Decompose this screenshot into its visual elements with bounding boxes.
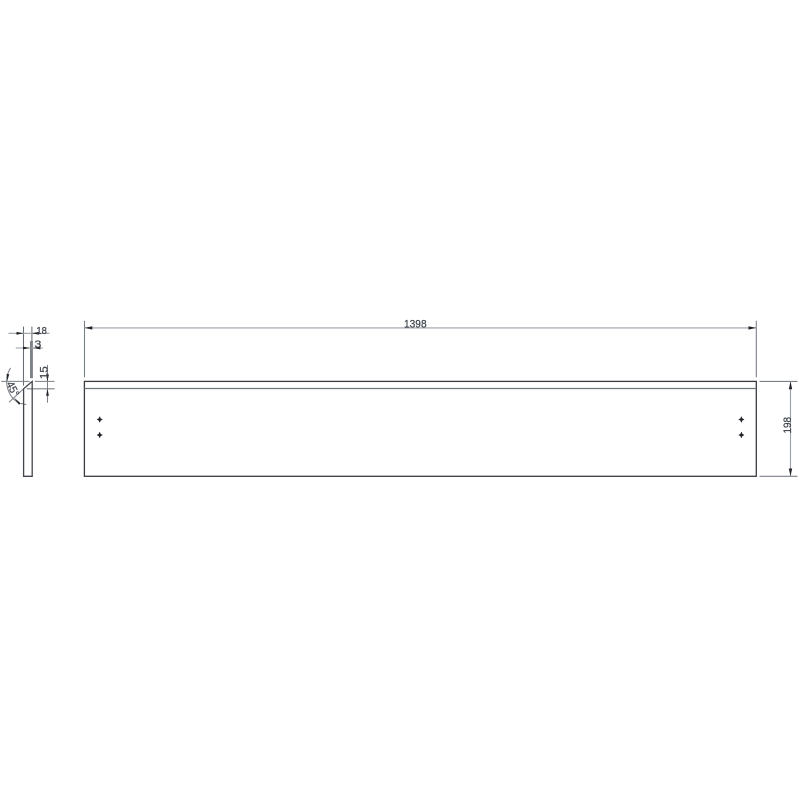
svg-text:198: 198 [782, 417, 794, 434]
svg-text:3: 3 [34, 339, 41, 351]
svg-text:1398: 1398 [404, 319, 427, 331]
svg-text:18: 18 [36, 326, 47, 337]
svg-text:15: 15 [39, 366, 51, 379]
